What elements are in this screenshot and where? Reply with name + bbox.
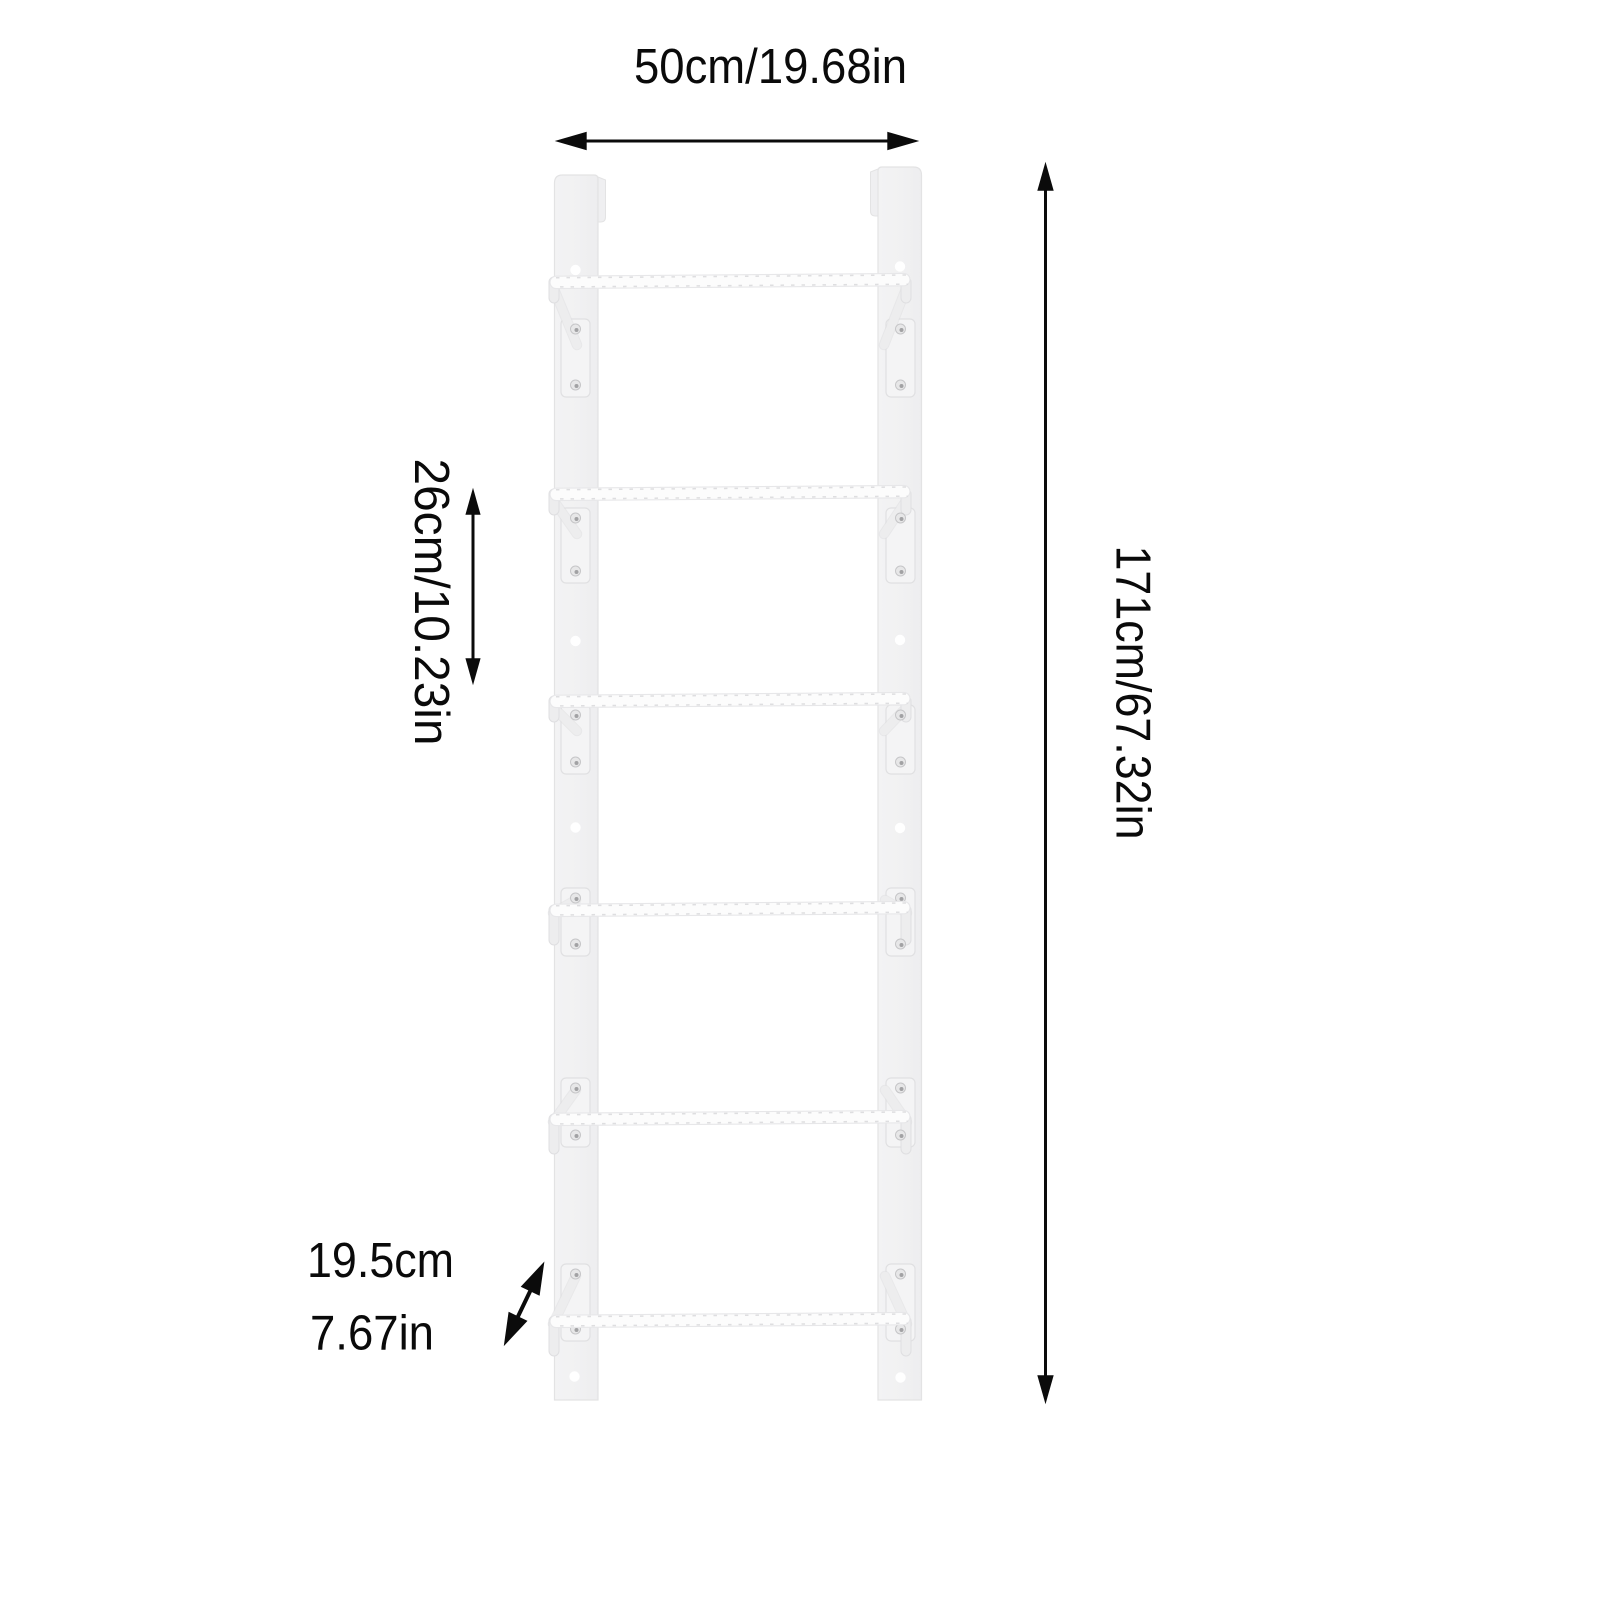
svg-text:50cm/19.68in: 50cm/19.68in <box>634 40 907 94</box>
svg-text:19.5cm: 19.5cm <box>307 1234 454 1288</box>
svg-text:7.67in: 7.67in <box>310 1307 434 1361</box>
svg-text:26cm/10.23in: 26cm/10.23in <box>404 459 458 746</box>
svg-text:171cm/67.32in: 171cm/67.32in <box>1106 546 1160 840</box>
